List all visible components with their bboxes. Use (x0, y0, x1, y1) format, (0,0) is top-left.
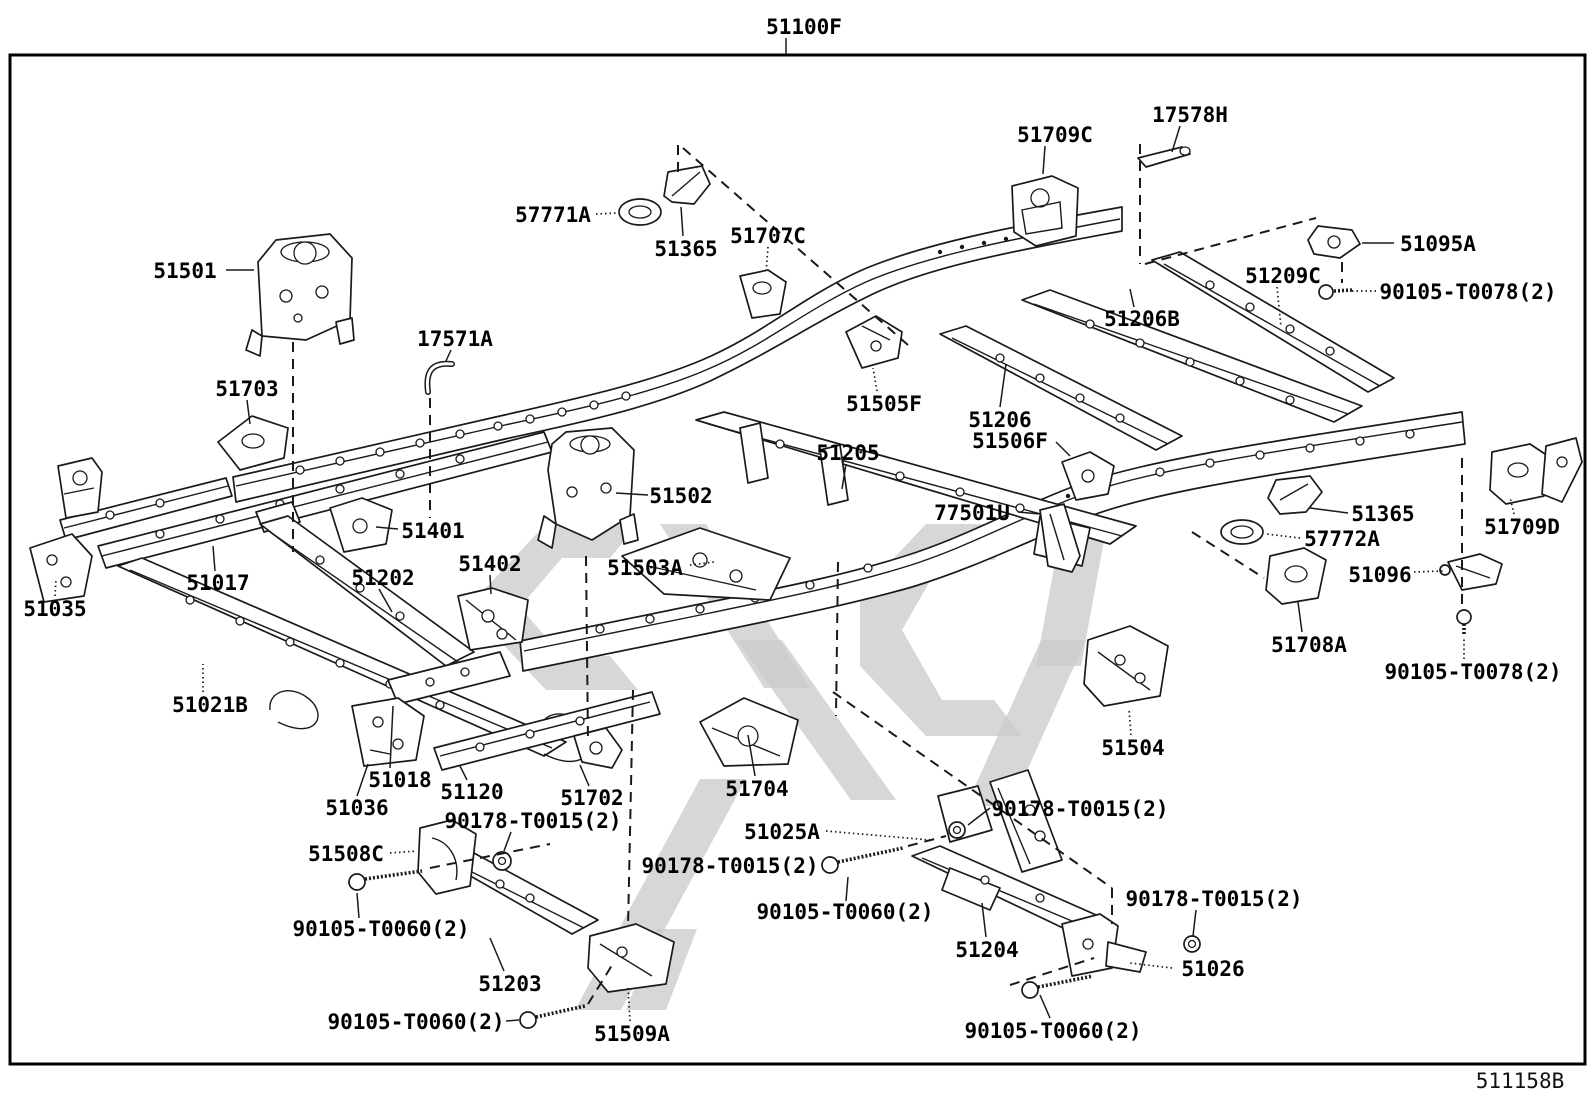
leader-line-51365 (681, 207, 683, 236)
part-label-51120: 51120 (440, 780, 503, 804)
leader-line-51504 (1129, 709, 1131, 735)
part-label-90178-T0015(2): 90178-T0015(2) (444, 809, 621, 833)
leader-line-57772A (1266, 534, 1300, 538)
part-label-51708A: 51708A (1271, 633, 1347, 657)
leader-line-51707C (766, 247, 768, 273)
part-art-51402 (458, 588, 528, 650)
part-label-90105-T0060(2): 90105-T0060(2) (327, 1010, 504, 1034)
leader-line-51402 (490, 575, 491, 594)
part-label-51504: 51504 (1101, 736, 1164, 760)
part-label-51025A: 51025A (744, 820, 820, 844)
leader-line-51206B (1130, 289, 1134, 307)
leader-line-51025A (826, 831, 930, 840)
bolt-icon-90105-T0060-bottom-left (520, 1006, 585, 1028)
part-art-right-edge-bracket (1542, 438, 1582, 502)
part-art-51401 (330, 498, 392, 552)
part-label-57772A: 57772A (1304, 527, 1380, 551)
nut-icon-90178-T0015-right (949, 822, 965, 838)
part-art-51036 (352, 698, 424, 766)
part-art-51709D (1490, 444, 1548, 504)
part-label-51509A: 51509A (594, 1022, 670, 1046)
leader-line-51120 (460, 766, 467, 780)
part-art-51707C (740, 270, 786, 318)
part-label-51209C: 51209C (1245, 264, 1321, 288)
part-art-51504 (1084, 626, 1168, 706)
part-art-51095A (1308, 226, 1360, 258)
part-label-51503A: 51503A (607, 556, 683, 580)
leader-line-17571A (446, 350, 451, 361)
nut-icon-90178-T0015-left (493, 852, 511, 870)
part-label-51036: 51036 (325, 796, 388, 820)
leader-line-90178-T0015(2) (1193, 910, 1196, 936)
part-label-90105-T0078(2): 90105-T0078(2) (1384, 660, 1561, 684)
part-art-51505F (846, 316, 902, 368)
part-label-51709C: 51709C (1017, 123, 1093, 147)
part-label-57771A: 57771A (515, 203, 591, 227)
parts-diagram-canvas: 51100F17578H51709C57771A5136551707C51095… (0, 0, 1592, 1099)
leader-line-51506F (1056, 442, 1070, 456)
part-label-90105-T0060(2): 90105-T0060(2) (292, 917, 469, 941)
leader-line-90105-T0060(2) (506, 1020, 519, 1021)
leader-line-51036 (357, 764, 368, 796)
part-art-51096 (1440, 554, 1502, 590)
frame-artwork (30, 147, 1582, 1028)
part-label-17578H: 17578H (1152, 103, 1228, 127)
leader-line-90105-T0060(2) (846, 877, 848, 901)
leader-line-51508C (390, 851, 417, 853)
part-art-57771A (619, 199, 661, 225)
part-label-51365: 51365 (654, 237, 717, 261)
part-label-90105-T0060(2): 90105-T0060(2) (964, 1019, 1141, 1043)
part-number-labels: 51100F17578H51709C57771A5136551707C51095… (23, 15, 1561, 1046)
part-label-90105-T0078(2): 90105-T0078(2) (1379, 280, 1556, 304)
bolt-icon-90178-T0015-center (822, 848, 903, 873)
part-label-51026: 51026 (1181, 957, 1244, 981)
part-label-51709D: 51709D (1484, 515, 1560, 539)
leader-line-51017 (213, 546, 215, 571)
part-label-51202: 51202 (351, 566, 414, 590)
nut-icon-90178-T0015-far-right (1184, 936, 1200, 952)
part-label-17571A: 17571A (417, 327, 493, 351)
bolt-icon-90105-T0078-right (1457, 610, 1471, 634)
part-art-17578H (1138, 147, 1190, 167)
leader-line-90178-T0015(2) (504, 832, 511, 851)
figure-code: 511158B (1476, 1069, 1565, 1093)
part-art-51703 (218, 416, 288, 470)
part-label-51206B: 51206B (1104, 307, 1180, 331)
parts-catalog-diagram-page: 51100F17578H51709C57771A5136551707C51095… (0, 0, 1592, 1099)
part-label-51508C: 51508C (308, 842, 384, 866)
part-label-51100F: 51100F (766, 15, 842, 39)
part-label-77501U: 77501U (934, 501, 1010, 525)
part-label-51018: 51018 (368, 768, 431, 792)
part-label-51502: 51502 (649, 484, 712, 508)
assembly-dash-line (908, 836, 946, 846)
part-art-51026 (1062, 914, 1146, 976)
part-label-51702: 51702 (560, 786, 623, 810)
part-art-51704 (700, 698, 798, 766)
part-art-51501 (246, 234, 354, 356)
part-label-51704: 51704 (725, 777, 788, 801)
part-label-51401: 51401 (401, 519, 464, 543)
part-art-51035 (30, 534, 92, 602)
assembly-dash-line (628, 690, 633, 928)
part-art-51701 (58, 458, 102, 518)
part-label-90105-T0060(2): 90105-T0060(2) (756, 900, 933, 924)
part-label-51096: 51096 (1348, 563, 1411, 587)
leader-line-51505F (873, 368, 877, 391)
leader-line-51365 (1310, 508, 1348, 513)
part-label-51707C: 51707C (730, 224, 806, 248)
part-label-90178-T0015(2): 90178-T0015(2) (991, 797, 1168, 821)
part-label-51204: 51204 (955, 938, 1018, 962)
part-label-51021B: 51021B (172, 693, 248, 717)
leader-line-90105-T0060(2) (1040, 995, 1050, 1018)
part-label-51203: 51203 (478, 972, 541, 996)
bolt-icon-90105-T0060-bottom-right (1022, 976, 1093, 998)
part-label-51506F: 51506F (972, 429, 1048, 453)
part-art-51708A (1266, 548, 1326, 604)
part-art-17571A (427, 364, 452, 392)
part-label-51402: 51402 (458, 552, 521, 576)
leader-line-51096 (1414, 571, 1443, 572)
part-label-51505F: 51505F (846, 392, 922, 416)
leader-line-90105-T0060(2) (357, 893, 359, 918)
assembly-dash-line (1145, 218, 1316, 264)
part-label-90178-T0015(2): 90178-T0015(2) (641, 854, 818, 878)
part-label-51205: 51205 (816, 441, 879, 465)
part-art-51702 (574, 728, 622, 768)
part-label-90178-T0015(2): 90178-T0015(2) (1125, 887, 1302, 911)
part-label-51095A: 51095A (1400, 232, 1476, 256)
part-label-51501: 51501 (153, 259, 216, 283)
part-art-57772A (1221, 520, 1263, 544)
part-label-51017: 51017 (186, 571, 249, 595)
bolt-icon-90105-T0078-top (1319, 285, 1352, 299)
bolt-icon-90105-T0060-left (349, 871, 422, 890)
leader-line-51709C (1043, 146, 1045, 174)
part-art-51709C (1012, 176, 1078, 246)
leader-line-51702 (580, 765, 589, 786)
leader-line-57771A (596, 213, 618, 214)
part-label-51035: 51035 (23, 597, 86, 621)
part-label-51365: 51365 (1351, 502, 1414, 526)
part-art-51365-front (664, 166, 710, 204)
leader-line-51203 (490, 938, 504, 971)
leader-line-51708A (1298, 602, 1302, 632)
leader-line-51206 (1000, 364, 1006, 407)
part-label-51703: 51703 (215, 377, 278, 401)
part-art-51502 (538, 428, 638, 548)
